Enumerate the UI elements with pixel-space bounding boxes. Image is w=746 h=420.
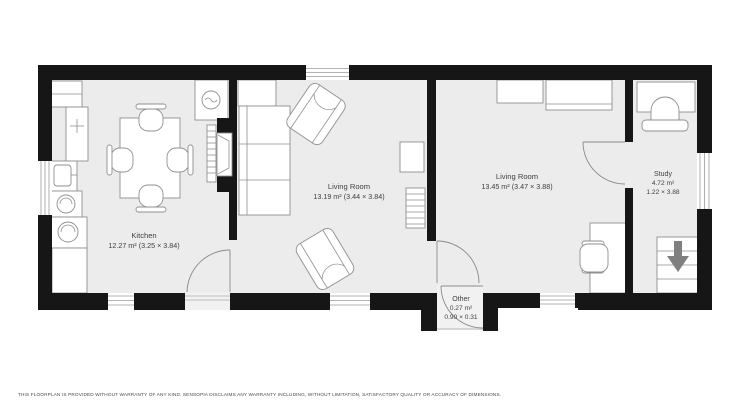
side-table xyxy=(400,142,424,172)
other-nook-wall xyxy=(483,293,498,331)
room-dims-other: 0.90 × 0.31 xyxy=(444,314,478,321)
cabinet xyxy=(238,80,276,106)
kitchen-counter xyxy=(66,107,88,161)
partition-living-study xyxy=(625,80,633,142)
disclaimer-text: THIS FLOORPLAN IS PROVIDED WITHOUT WARRA… xyxy=(18,392,501,397)
room-area-living-2: 13.45 m² (3.47 × 3.88) xyxy=(481,182,552,191)
fireplace xyxy=(217,133,232,176)
sideboard xyxy=(546,80,612,110)
partition-living-living xyxy=(427,78,436,241)
room-dims-study: 1.22 × 3.88 xyxy=(646,189,680,196)
room-label-other: Other xyxy=(452,296,470,303)
dining-chair xyxy=(136,185,166,212)
room-label-living-1: Living Room xyxy=(328,182,370,191)
dining-chair xyxy=(167,145,193,175)
room-area-living-1: 13.19 m² (3.44 × 3.84) xyxy=(313,192,384,201)
floorplan-drawing: Kitchen 12.27 m² (3.25 × 3.84) Living Ro… xyxy=(0,0,746,420)
window xyxy=(327,293,373,310)
room-area-kitchen: 12.27 m² (3.25 × 3.84) xyxy=(108,241,179,250)
dining-chair xyxy=(136,104,166,131)
window xyxy=(537,293,578,308)
room-label-living-2: Living Room xyxy=(496,172,538,181)
window xyxy=(38,158,52,218)
room-label-study: Study xyxy=(654,171,672,178)
window xyxy=(105,293,137,310)
window xyxy=(697,150,712,212)
radiator xyxy=(406,188,425,228)
other-nook-wall xyxy=(421,293,437,331)
room-label-kitchen: Kitchen xyxy=(131,231,156,240)
staircase xyxy=(657,237,698,293)
dining-chair xyxy=(107,145,133,175)
radiator xyxy=(207,125,216,182)
desk-chair xyxy=(580,241,608,273)
cabinet xyxy=(497,80,543,103)
room-area-study: 4.72 m² xyxy=(652,180,675,187)
floorplan-page: Kitchen 12.27 m² (3.25 × 3.84) Living Ro… xyxy=(0,0,746,420)
room-area-other: 0.27 m² xyxy=(450,305,473,312)
kitchen-counter xyxy=(52,248,87,293)
window xyxy=(303,65,352,80)
partition-living-study xyxy=(625,188,633,293)
